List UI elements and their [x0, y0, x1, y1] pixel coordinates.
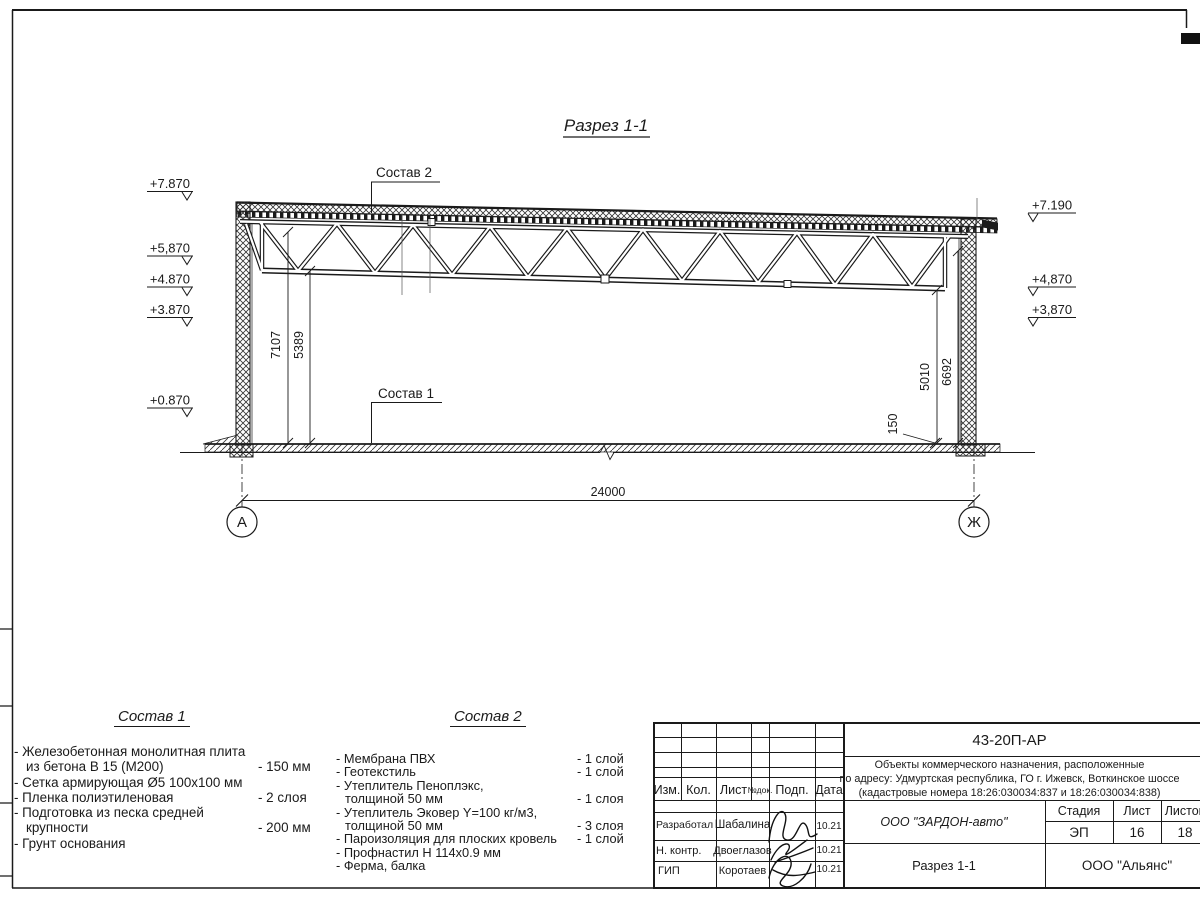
tb-col-ndoc: №док. — [751, 779, 769, 800]
tb-sheets-value: 18 — [1161, 821, 1200, 843]
legend-item: - Утеплитель Пеноплэкс, — [336, 779, 654, 792]
legend-sostav2: Состав 2 - Мембрана ПВХ- 1 слой - Геотек… — [336, 706, 654, 881]
axis-bubbles — [227, 507, 989, 537]
legend-item: - Пленка полиэтиленовая- 2 слоя — [14, 790, 332, 805]
legend1-title: Состав 1 — [114, 708, 190, 727]
elevation-label: +7.190 — [1032, 198, 1072, 213]
tb-project-line1: Объекты коммерческого назначения, распол… — [845, 758, 1174, 772]
elevation-label: +3,870 — [1032, 302, 1072, 317]
legend1-rows: - Железобетонная монолитная плита из бет… — [14, 744, 332, 851]
tb-sheet-label: Лист — [1113, 801, 1161, 821]
elevation-label: +4.870 — [150, 272, 190, 287]
signature-gip — [763, 848, 821, 889]
legend-item: - Железобетонная монолитная плита — [14, 744, 332, 759]
tb-row2-name: Двоеглазов — [716, 842, 769, 860]
legend-item: - Утеплитель Эковер Y=100 кг/м3, — [336, 806, 654, 819]
tb-sheets-label: Листов — [1161, 801, 1200, 821]
legend2-title: Состав 2 — [450, 708, 526, 727]
tb-col-kol: Кол. — [681, 779, 716, 800]
section-title: Разрез 1-1 — [564, 116, 648, 135]
tb-org: ООО "Альянс" — [1045, 844, 1200, 887]
tb-stage-label: Стадия — [1045, 801, 1113, 821]
tb-project-line2: по адресу: Удмуртская республика, ГО г. … — [845, 772, 1174, 786]
legend-item: - Грунт основания — [14, 836, 332, 851]
tb-row3-role: ГИП — [658, 862, 716, 880]
legend-item: из бетона В 15 (М200)- 150 мм — [14, 759, 332, 774]
tb-row3-name: Коротаев — [716, 862, 769, 880]
elevation-label: +7.870 — [150, 176, 190, 191]
dim-label: 6692 — [940, 358, 954, 386]
foundation-right — [956, 444, 985, 456]
floor-slab — [180, 436, 1035, 460]
column-left — [236, 202, 250, 445]
legend-item: крупности- 200 мм — [14, 820, 332, 835]
title-block: Изм. Кол. Лист №док. Подп. Дата Разработ… — [653, 722, 1200, 889]
tb-stage-value: ЭП — [1045, 821, 1113, 843]
elevation-label: +5,870 — [150, 241, 190, 256]
legend-item: - Профнастил Н 114х0.9 мм — [336, 846, 654, 859]
elevation-label: +0.870 — [150, 393, 190, 408]
legend-item: - Подготовка из песка средней — [14, 805, 332, 820]
dim-label: 150 — [886, 414, 900, 435]
drawing-sheet: Разрез 1-1 — [0, 0, 1200, 900]
tb-col-izm: Изм. — [653, 779, 681, 800]
legend-item: толщиной 50 мм- 3 слоя — [336, 819, 654, 832]
axis-label-left: А — [237, 514, 247, 531]
legend-item: толщиной 50 мм- 1 слоя — [336, 792, 654, 805]
span-dim-label: 24000 — [591, 485, 626, 499]
elevation-label: +4,870 — [1032, 272, 1072, 287]
tb-project-line3: (кадастровые номера 18:26:030034:837 и 1… — [845, 786, 1174, 800]
legend-item: - Пароизоляция для плоских кровель- 1 сл… — [336, 832, 654, 845]
tb-drawing-name: Разрез 1-1 — [843, 844, 1045, 887]
legend-sostav1: Состав 1 - Железобетонная монолитная пли… — [14, 706, 332, 866]
legend-item: - Геотекстиль- 1 слой — [336, 765, 654, 778]
dim-label: 5389 — [292, 331, 306, 359]
tb-row1-name: Шабалина — [716, 814, 769, 836]
elevation-label: +3.870 — [150, 302, 190, 317]
callout-sostav1: Состав 1 — [371, 386, 442, 443]
tb-col-list: Лист — [716, 779, 751, 800]
dim-label: 5010 — [918, 363, 932, 391]
legend2-rows: - Мембрана ПВХ- 1 слой - Геотекстиль- 1 … — [336, 752, 654, 873]
legend-item: - Сетка армирующая Ø5 100х100 мм — [14, 775, 332, 790]
tb-company: ООО "ЗАРДОН-авто" — [843, 801, 1045, 842]
legend-item: - Ферма, балка — [336, 859, 654, 872]
tb-doc-number: 43-20П-АР — [843, 725, 1176, 755]
svg-text:Состав 1: Состав 1 — [378, 386, 434, 401]
frame-corner-mark — [1181, 33, 1200, 44]
tb-row1-role: Разработал — [656, 814, 716, 836]
foundation-left — [230, 444, 253, 457]
svg-text:Состав 2: Состав 2 — [376, 165, 432, 180]
column-right — [961, 219, 976, 445]
axis-label-right: Ж — [967, 514, 981, 531]
tb-sheet-value: 16 — [1113, 821, 1161, 843]
legend-item: - Мембрана ПВХ- 1 слой — [336, 752, 654, 765]
dim-label: 7107 — [269, 331, 283, 359]
tb-row2-role: Н. контр. — [656, 842, 716, 860]
tb-col-podp: Подп. — [769, 779, 815, 800]
